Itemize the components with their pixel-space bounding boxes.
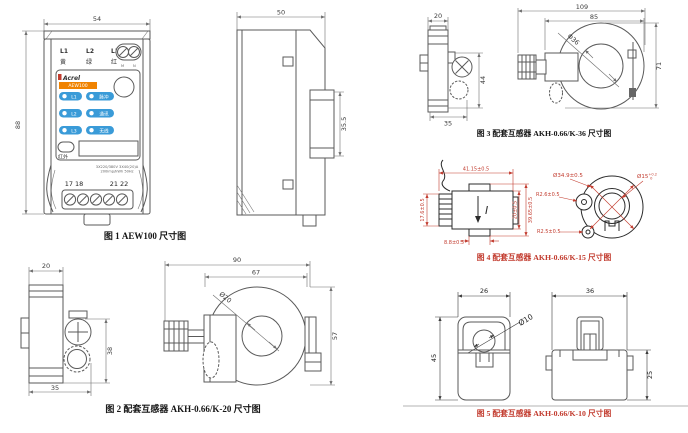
fig4-hole-dia-label: Ø15+0.20 (637, 173, 657, 181)
fig3-dim-side-top: 20 (434, 12, 442, 20)
fig5-dim-left-width: 26 (480, 287, 488, 295)
fig4-r-lower-label: R2.5±0.5 (537, 229, 561, 235)
fig3-side-view: 20 44 35 (420, 12, 487, 128)
fig5-body (552, 350, 627, 400)
fig5-dim-left-height-label: 45 (430, 354, 438, 362)
fig5-group: 26 45 Ø10 36 (403, 287, 688, 418)
fig4-dim-left-height: 17.6±0.5 (420, 194, 439, 226)
led3-label: L3 (71, 129, 77, 135)
fig1-dim-height-label: 88 (14, 121, 22, 129)
fig3-dim-side-right-label: 44 (479, 76, 487, 84)
fig4-r-lower-dim: R2.5±0.5 (537, 229, 583, 235)
fig2-dim-height-label: 57 (331, 332, 339, 340)
led2-func-label: 通讯 (99, 111, 109, 118)
side-dim-width-label: 50 (277, 9, 285, 17)
fig3-dim-body-width-label: 85 (590, 13, 598, 21)
fig2-dim-side-top: 20 (42, 262, 50, 270)
fig2-ct-hole (242, 316, 282, 356)
led1-func-label: 脉冲 (99, 94, 109, 101)
fig3-group: 20 44 35 109 (420, 3, 663, 138)
color-yellow: 黄 (60, 58, 66, 66)
fig2-dim-body-width-label: 67 (252, 269, 260, 277)
fig4-outer-dia-dim: Ø34.9±0.5 (553, 172, 591, 187)
fig2-caption: 图 2 配套互感器 AKH-0.66/K-20 尺寸图 (105, 403, 260, 414)
fig5-dim-right-height-label: 25 (646, 371, 654, 379)
led2-label: L2 (71, 112, 77, 118)
fig4-dim-outer-height-label: 39.65±0.5 (528, 197, 534, 223)
fig2-screw-knob (164, 321, 204, 351)
fig4-front-view: Ø34.9±0.5 Ø15+0.20 R2.6±0.5 R2.5±0.5 (536, 172, 657, 238)
fig3-dim-side-bottom-label: 35 (444, 120, 452, 128)
side-foot (303, 215, 316, 226)
acrel-logo-mark (58, 74, 62, 80)
fig3-front-view: 109 85 Φ36 (518, 3, 663, 109)
fig4-group: I 41.15±0.5 17.6±0.5 8.8±0.5 20±0.5 (420, 160, 657, 262)
fig4-dim-width-label: 41.15±0.5 (463, 167, 489, 173)
fig4-dim-base: 8.8±0.5 (444, 236, 499, 246)
fig2-dim-body-width: 67 (205, 269, 307, 288)
fig4-cable (441, 160, 450, 191)
fig1-dim-width-label: 54 (93, 15, 101, 23)
side-dim-rail-label: 35.5 (340, 117, 348, 131)
model-banner-label: AEW100 (68, 83, 87, 89)
fig2-bottom-knob (203, 342, 219, 378)
fig4-r-upper-label: R2.6±0.5 (536, 192, 560, 198)
fig4-dim-inner-height-label: 20±0.5 (513, 201, 519, 220)
fig5-dim-right-width: 36 (586, 287, 594, 295)
phase-l2: L2 (86, 48, 94, 55)
fig2-front-view: 90 67 Ø20 (164, 256, 339, 385)
fig3-dim-height-label: 71 (655, 62, 663, 70)
fig5-dim-left-height: 45 (430, 317, 458, 400)
fig3-caption: 图 3 配套互感器 AKH-0.66/K-36 尺寸图 (477, 128, 612, 138)
fig1-side-view: 50 35.5 (237, 9, 348, 227)
fig1-dim-height: 88 (14, 31, 44, 214)
fig4-ct-hole (599, 193, 625, 219)
fig2-dim-side-right-label: 38 (106, 347, 114, 355)
fig3-dim-total-width-label: 109 (576, 3, 588, 11)
fig4-caption: 图 4 配套互感器 AKH-0.66/K-15 尺寸图 (477, 252, 612, 262)
color-red: 红 (111, 58, 117, 66)
fig1-caption: 图 1 AEW100 尺寸图 (104, 230, 186, 241)
fig4-dim-left-height-label: 17.6±0.5 (420, 198, 426, 221)
fig2-dim-side-bottom-label: 35 (51, 384, 59, 392)
rating-line1: 3X220/380V 3X40(20)A (96, 165, 139, 169)
side-dim-rail: 35.5 (334, 92, 348, 156)
color-green: 绿 (86, 58, 92, 66)
fig5-hole-label: Ø10 (517, 312, 535, 328)
fig4-side-view: I 41.15±0.5 17.6±0.5 8.8±0.5 20±0.5 (420, 160, 534, 246)
fig5-right-view: 36 25 (546, 287, 654, 400)
drawing-sheet: 54 88 L1 L2 L3 黄 绿 红 (0, 0, 688, 433)
fig1-front-view: 54 88 L1 L2 L3 黄 绿 红 (14, 15, 186, 241)
phase-l1: L1 (60, 48, 68, 55)
fig3-screw-knob (518, 55, 546, 79)
fig5-ct-hole (473, 330, 495, 352)
fig4-polarity-label: I (485, 204, 488, 217)
fig3-ct-neck (545, 53, 578, 81)
fig5-dim-right-height: 25 (627, 350, 654, 400)
led1-label: L1 (71, 95, 77, 101)
terminal-n-label: N (133, 64, 136, 68)
fig1-dim-width: 54 (44, 15, 150, 31)
fig2-latch (305, 317, 321, 371)
fig4-r-upper-dim: R2.6±0.5 (536, 192, 577, 201)
brand-logo: Acrel (62, 75, 81, 82)
fig4-lug-lower (582, 226, 594, 238)
fig2-group: 20 38 35 90 (21, 256, 339, 414)
fig2-side-view: 20 38 35 (21, 262, 114, 396)
led3-func-label: 无线 (99, 128, 109, 135)
fig4-dim-base-label: 8.8±0.5 (444, 240, 464, 246)
fig4-outer-dia-label: Ø34.9±0.5 (553, 172, 583, 179)
front-panel: Acrel AEW100 L1 脉冲 L2 通讯 (56, 70, 140, 161)
terminal-numbers-left: 17 18 (65, 180, 84, 188)
fig5-left-view: 26 45 Ø10 (430, 287, 535, 400)
fig5-caption: 图 5 配套互感器 AKH-0.66/K-10 尺寸图 (477, 408, 612, 418)
terminal-numbers-right: 21 22 (110, 180, 129, 188)
drawing-canvas: 54 88 L1 L2 L3 黄 绿 红 (0, 0, 688, 433)
fig3-bottom-knob (550, 83, 563, 103)
terminal-m-label: M (121, 64, 124, 68)
infrared-label: 红外 (58, 154, 68, 161)
fig2-dim-total-width-label: 90 (233, 256, 241, 264)
rating-line2: 200imp/kWh 50Hz (100, 170, 133, 174)
fig4-lug-upper (576, 194, 592, 210)
